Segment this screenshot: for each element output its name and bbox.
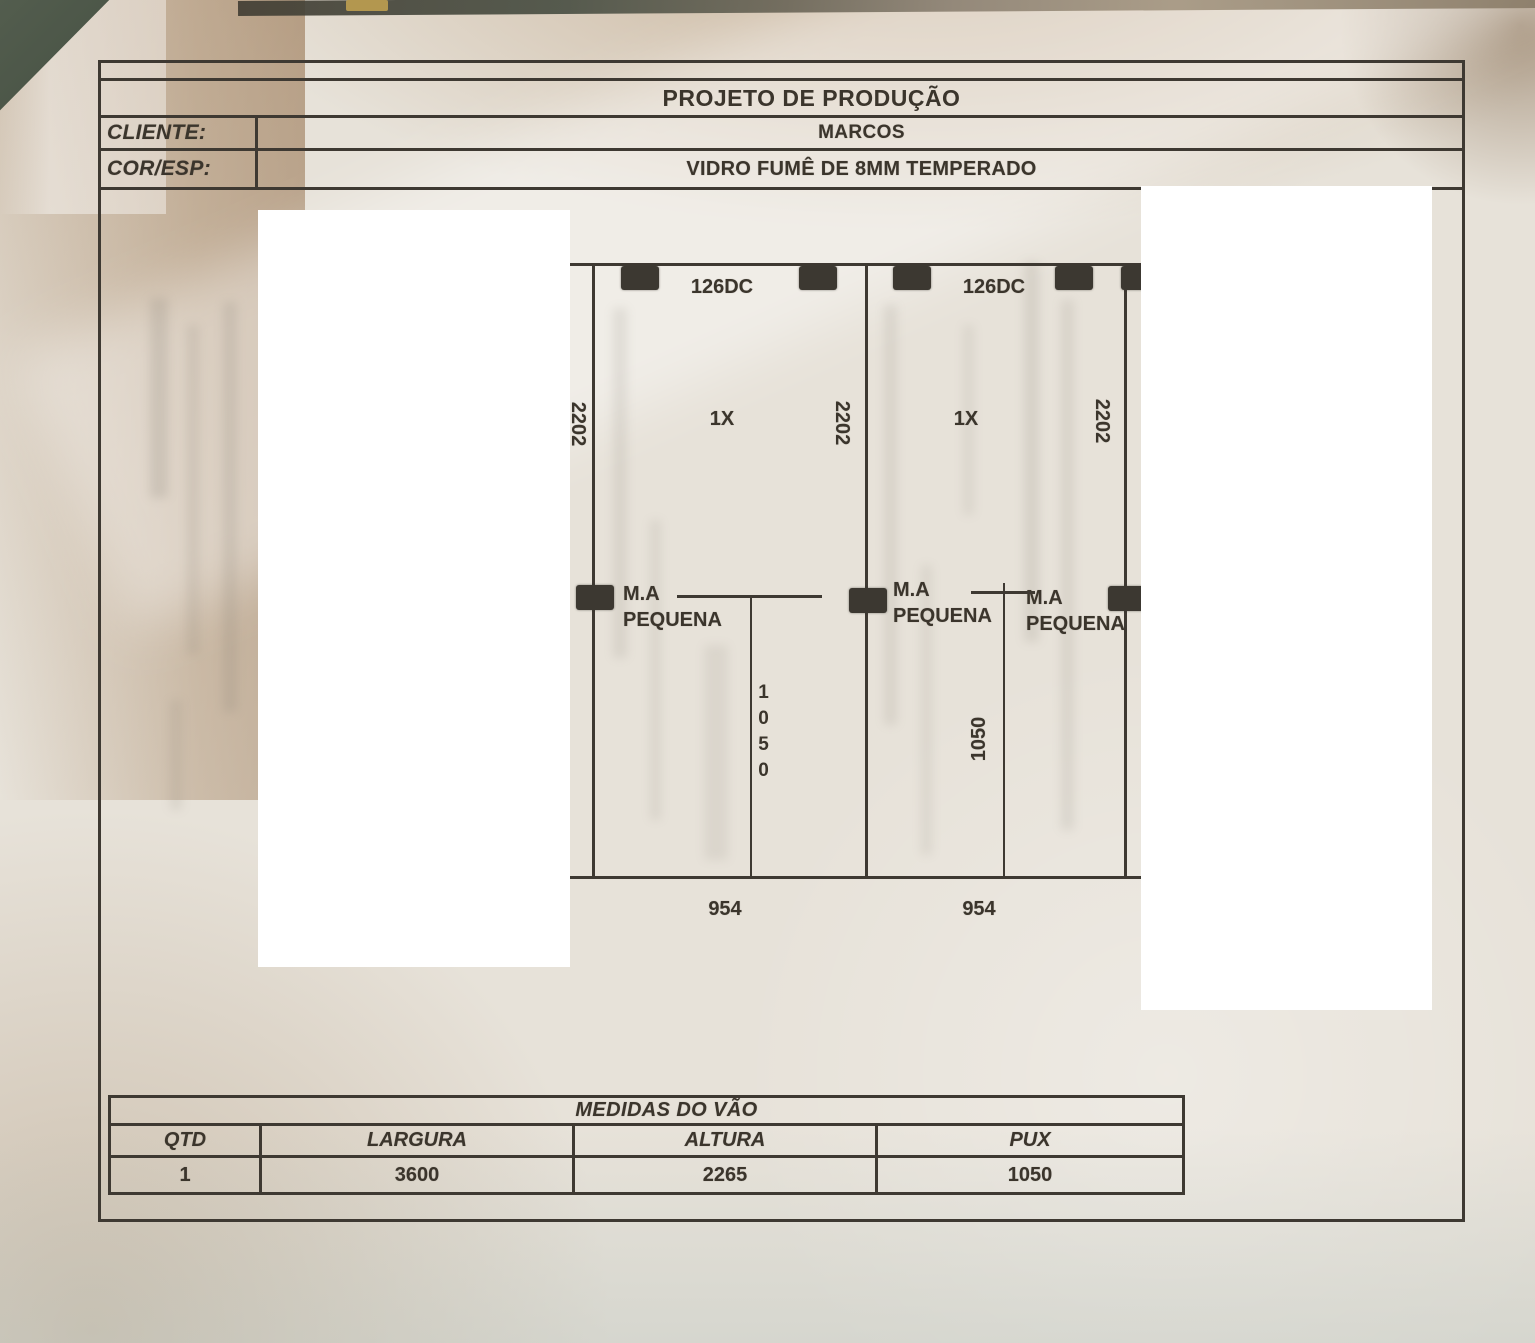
panel-width-label: 954 — [929, 898, 1029, 921]
field-value-cor-esp: VIDRO FUMÊ DE 8MM TEMPERADO — [258, 151, 1465, 187]
photographed-production-document: PROJETO DE PRODUÇÃO CLIENTE: MARCOS COR/… — [0, 0, 1535, 1343]
handle-label-line2: PEQUENA — [1026, 611, 1156, 637]
panel-width-label: 954 — [675, 898, 775, 921]
handle-label: M.A PEQUENA — [623, 581, 753, 633]
hinge-code-label: 126DC — [924, 276, 1064, 299]
dimension-line — [1003, 583, 1005, 877]
panel-edge-right — [1124, 263, 1127, 879]
height-dimension-label: 2202 — [1087, 376, 1113, 466]
panel-divider — [865, 263, 868, 879]
header-table: PROJETO DE PRODUÇÃO CLIENTE: MARCOS COR/… — [98, 78, 1465, 190]
panel-quantity-label: 1X — [916, 408, 1016, 431]
top-clamp — [799, 266, 837, 290]
column-header-altura: ALTURA — [575, 1126, 878, 1158]
handle-label: M.A PEQUENA — [1026, 585, 1156, 637]
table-row: 1 3600 2265 1050 — [111, 1158, 1182, 1192]
handle-label-line2: PEQUENA — [623, 607, 753, 633]
redaction-box-left — [258, 210, 570, 967]
handle-clamp — [849, 588, 887, 613]
measures-table: MEDIDAS DO VÃO QTD LARGURA ALTURA PUX 1 … — [108, 1095, 1185, 1195]
value-pux: 1050 — [878, 1158, 1182, 1192]
column-header-largura: LARGURA — [262, 1126, 575, 1158]
field-value-cliente: MARCOS — [258, 118, 1465, 148]
handle-label-line1: M.A — [623, 581, 753, 607]
dimension-line — [750, 596, 752, 877]
handle-clamp — [576, 585, 614, 610]
pull-height-label: 1050 — [755, 680, 772, 784]
height-dimension-label: 2202 — [827, 378, 853, 468]
panel-edge-left — [592, 263, 595, 879]
pull-height-label: 1050 — [968, 699, 994, 779]
drawing-bottom-line — [540, 876, 1150, 879]
column-header-pux: PUX — [878, 1126, 1182, 1158]
column-header-qtd: QTD — [111, 1126, 262, 1158]
photo-background-top-edge — [238, 0, 1535, 16]
value-largura: 3600 — [262, 1158, 575, 1192]
value-altura: 2265 — [575, 1158, 878, 1192]
photo-background-object — [346, 0, 388, 11]
handle-label-line1: M.A — [1026, 585, 1156, 611]
field-label-cliente: CLIENTE: — [98, 118, 258, 148]
value-qtd: 1 — [111, 1158, 262, 1192]
hinge-code-label: 126DC — [652, 276, 792, 299]
panel-quantity-label: 1X — [672, 408, 772, 431]
measures-table-title: MEDIDAS DO VÃO — [111, 1098, 1182, 1126]
document-title: PROJETO DE PRODUÇÃO — [98, 81, 1465, 118]
field-label-cor-esp: COR/ESP: — [98, 151, 258, 187]
redaction-box-right — [1141, 186, 1432, 1010]
